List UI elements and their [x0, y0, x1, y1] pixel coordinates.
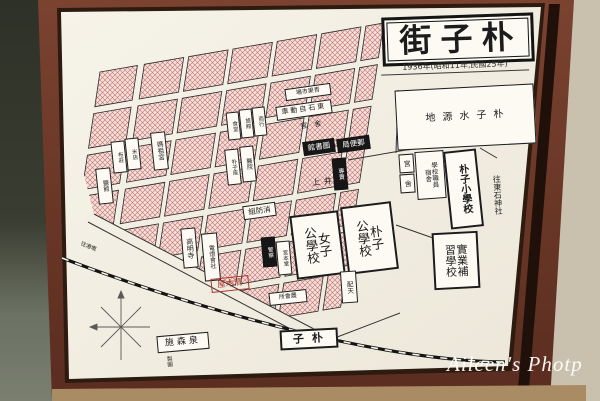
city-block [139, 58, 184, 100]
city-block [95, 66, 138, 107]
monopoly-label: 專賣 [332, 157, 349, 190]
city-block [177, 92, 222, 133]
cartographer-label: 製圖 [162, 350, 174, 373]
staff-dorm-label: 學校職員 宿舍 [414, 150, 446, 200]
dorm-box-a: 宮 [398, 153, 414, 173]
city-block [228, 42, 273, 83]
girls-school-label: 女子 公學校 [289, 210, 345, 279]
station-label: 子朴 [280, 327, 339, 350]
to-shrine-label: 往東石神社 [488, 167, 507, 224]
city-block [171, 133, 216, 174]
city-block [183, 50, 228, 91]
water-source-label: 地源水子朴 [395, 83, 537, 150]
miyamoto-label: 宮本堂 [276, 240, 293, 275]
puzi-school-label: 朴子 公學校 [340, 201, 399, 275]
framed-map-photo: 街子朴 1936年(昭和11年,民國25年) 地源水子朴 宮 舍 學校職員 宿舍… [0, 0, 600, 401]
city-block [272, 35, 317, 76]
city-block [165, 175, 210, 217]
dorm-box-b: 舍 [399, 173, 415, 193]
city-block [120, 182, 165, 223]
vocational-school-label: 實業補 習學校 [432, 231, 481, 290]
haitian-temple-label: 配天 [340, 270, 358, 303]
city-block [253, 159, 298, 201]
photo-watermark: Aileen's Photp [447, 352, 597, 377]
